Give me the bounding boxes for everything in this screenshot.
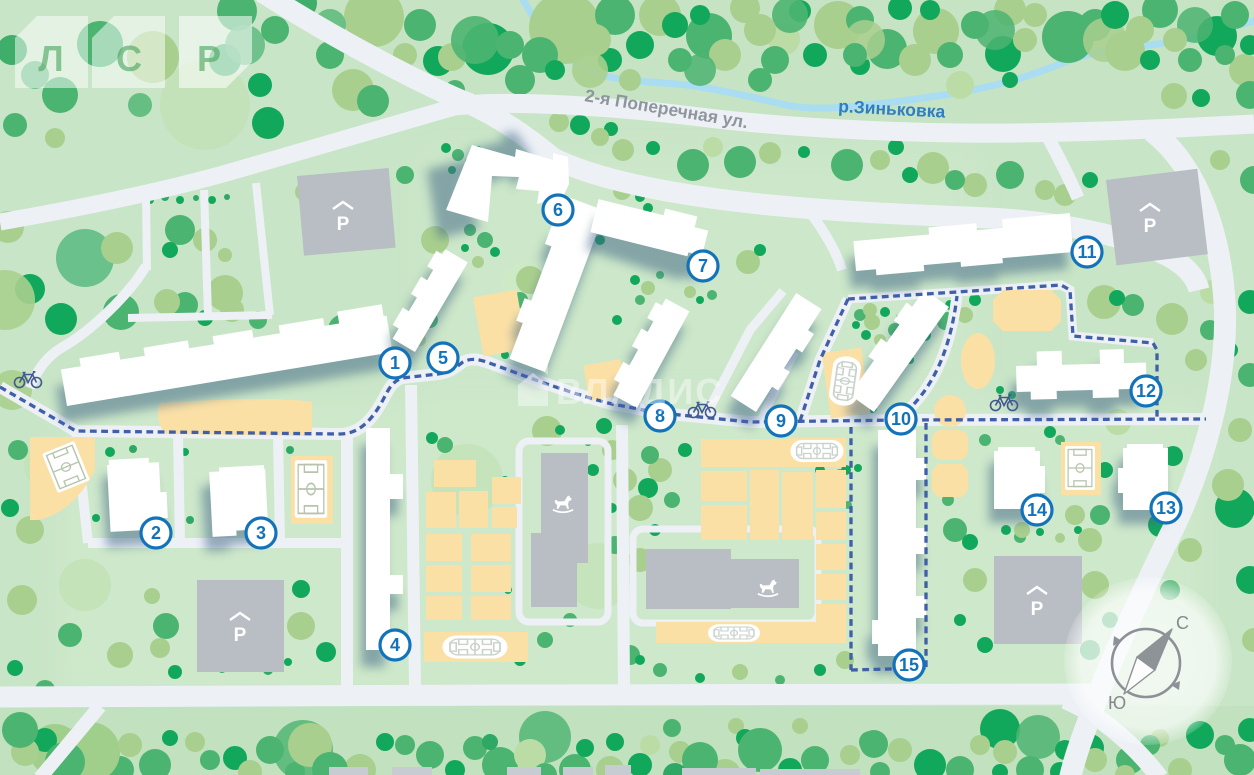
svg-text:5: 5 — [438, 348, 448, 368]
svg-text:Р: Р — [197, 38, 221, 79]
svg-text:3: 3 — [256, 523, 266, 543]
svg-text:13: 13 — [1156, 498, 1176, 518]
svg-text:ВЛАДИС: ВЛАДИС — [556, 371, 723, 412]
svg-text:15: 15 — [899, 655, 919, 675]
svg-text:Л: Л — [38, 38, 63, 79]
svg-text:1: 1 — [390, 353, 400, 373]
svg-text:С: С — [116, 38, 142, 79]
svg-text:9: 9 — [776, 411, 786, 431]
svg-text:12: 12 — [1136, 381, 1156, 401]
svg-text:P: P — [337, 214, 350, 235]
svg-text:P: P — [1144, 216, 1157, 237]
svg-text:7: 7 — [698, 256, 708, 276]
svg-text:P: P — [234, 625, 247, 646]
svg-text:10: 10 — [891, 409, 911, 429]
svg-text:Ю: Ю — [1108, 693, 1126, 713]
svg-text:11: 11 — [1077, 242, 1096, 262]
svg-text:6: 6 — [553, 200, 563, 220]
svg-text:С: С — [1176, 613, 1189, 633]
svg-text:2: 2 — [151, 523, 161, 543]
svg-text:4: 4 — [390, 635, 400, 655]
svg-text:P: P — [1031, 599, 1044, 620]
svg-text:14: 14 — [1027, 500, 1047, 520]
